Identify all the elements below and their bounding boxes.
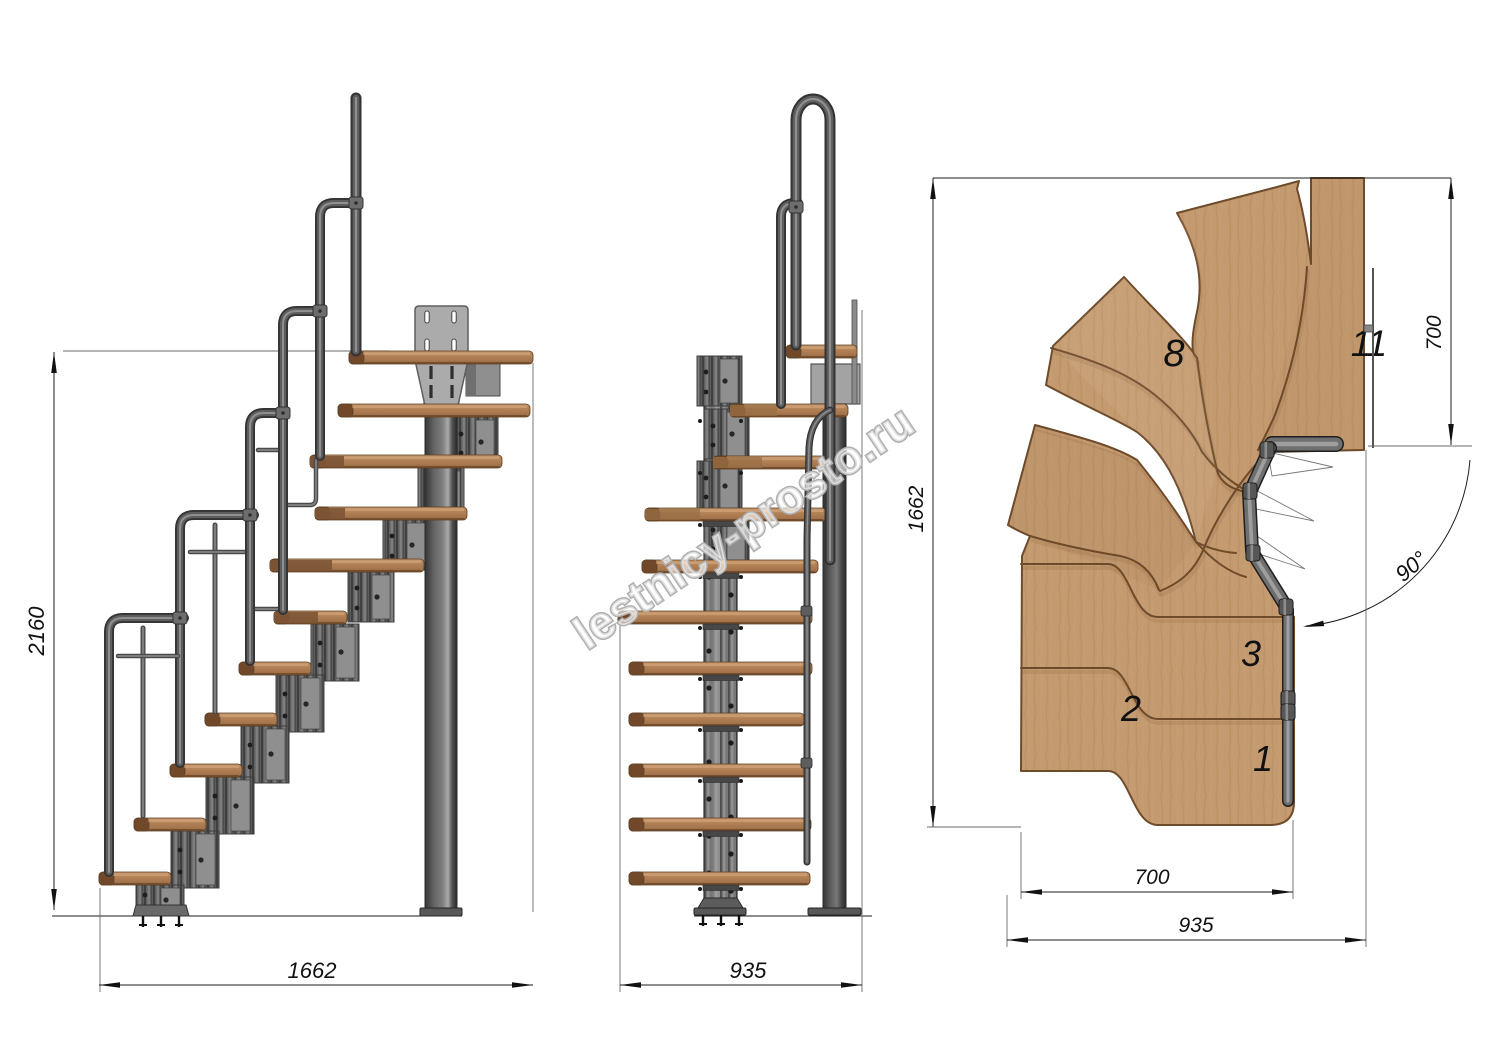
svg-text:1662: 1662 [288,958,337,983]
svg-text:935: 935 [730,958,767,983]
svg-text:2: 2 [1120,688,1141,729]
svg-text:2160: 2160 [24,606,49,657]
svg-text:1: 1 [1253,738,1273,779]
svg-text:8: 8 [1163,333,1184,375]
svg-text:1662: 1662 [905,485,928,532]
svg-text:700: 700 [1423,315,1446,350]
svg-text:700: 700 [1134,866,1169,889]
svg-text:3: 3 [1241,633,1261,674]
svg-text:935: 935 [1178,914,1213,937]
